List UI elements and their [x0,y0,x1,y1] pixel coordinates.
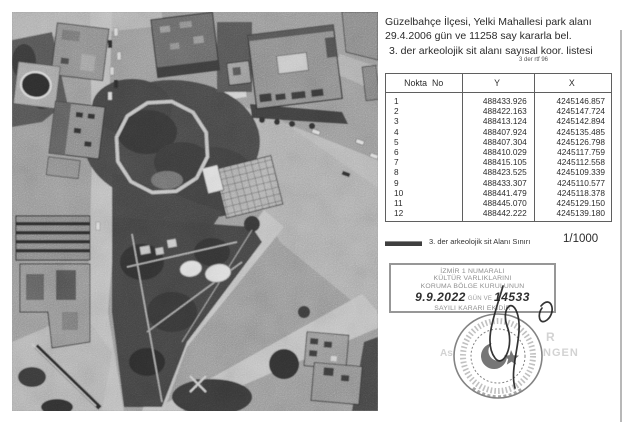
coord-x: 4245147.724 [533,106,611,116]
coord-y: 488442.222 [461,208,532,218]
table-row: 12488442.2224245139.180 [386,208,611,218]
header-point-no: Nokta No [386,78,461,88]
header-y: Y [461,78,532,88]
coord-y: 488422.163 [461,106,532,116]
table-row: 4488407.9244245135.485 [386,127,611,137]
coord-x: 4245126.798 [533,137,611,147]
aerial-photo [12,12,378,411]
coord-y: 488433.307 [461,178,532,188]
point-no: 2 [386,106,461,116]
point-no: 6 [386,147,461,157]
table-row: 10488441.4794245118.378 [386,188,611,198]
aerial-photo-canvas [12,12,378,411]
scanned-page-edge [620,30,622,422]
point-no: 8 [386,167,461,177]
coord-y: 488423.525 [461,167,532,177]
official-seal [443,284,558,408]
point-no: 4 [386,127,461,137]
coord-y: 488410.029 [461,147,532,157]
fold-mark [377,266,378,314]
coord-y: 488407.304 [461,137,532,147]
coord-y: 488445.070 [461,198,532,208]
point-no: 9 [386,178,461,188]
point-no: 10 [386,188,461,198]
stamp-line2: KÜLTÜR VARLIKLARINI [391,275,554,282]
table-row: 7488415.1054245112.558 [386,157,611,167]
doc-title-line3: 3. der arkeolojik sit alanı sayısal koor… [389,45,593,57]
table-row: 6488410.0294245117.759 [386,147,611,157]
coord-x: 4245146.857 [533,96,611,106]
scanned-document-page: { "header": { "line1": "Güzelbahçe İlçes… [0,0,627,422]
seal-text-ring [463,321,533,391]
table-row: 9488433.3074245110.577 [386,178,611,188]
point-no: 11 [386,198,461,208]
table-row: 1488433.9264245146.857 [386,96,611,106]
point-no: 5 [386,137,461,147]
coord-x: 4245139.180 [533,208,611,218]
table-row: 5488407.3044245126.798 [386,137,611,147]
table-header-row: Nokta No Y X [386,74,611,93]
table-row: 11488445.0704245129.150 [386,198,611,208]
doc-title-line2: 29.4.2006 gün ve 11258 say kararla bel. [385,30,572,42]
table-row: 2488422.1634245147.724 [386,106,611,116]
coord-x: 4245112.558 [533,157,611,167]
crescent-star-icon [481,343,519,369]
coord-x: 4245129.150 [533,198,611,208]
coord-y: 488407.924 [461,127,532,137]
boundary-line-swatch [385,241,422,246]
coord-x: 4245109.339 [533,167,611,177]
doc-title-note: 3 der rtf 96 [519,57,548,63]
table-body: 1488433.9264245146.8572488422.1634245147… [386,96,611,218]
coord-y: 488413.124 [461,116,532,126]
coord-x: 4245117.759 [533,147,611,157]
coord-y: 488441.479 [461,188,532,198]
coord-y: 488433.926 [461,96,532,106]
doc-title-line1: Güzelbahçe İlçesi, Yelki Mahallesi park … [385,16,592,28]
point-no: 12 [386,208,461,218]
table-row: 8488423.5254245109.339 [386,167,611,177]
coord-x: 4245142.894 [533,116,611,126]
signature [490,286,552,388]
point-no: 3 [386,116,461,126]
coord-x: 4245135.485 [533,127,611,137]
coord-x: 4245110.577 [533,178,611,188]
coordinates-table: Nokta No Y X 1488433.9264245146.85724884… [385,73,612,222]
seal-canvas [443,284,558,408]
coord-x: 4245118.378 [533,188,611,198]
legend-label: 3. der arkeolojik sit Alanı Sınırı [429,237,530,246]
point-no: 7 [386,157,461,167]
point-no: 1 [386,96,461,106]
map-scale: 1/1000 [563,233,598,245]
header-x: X [533,78,611,88]
coord-y: 488415.105 [461,157,532,167]
table-row: 3488413.1244245142.894 [386,116,611,126]
